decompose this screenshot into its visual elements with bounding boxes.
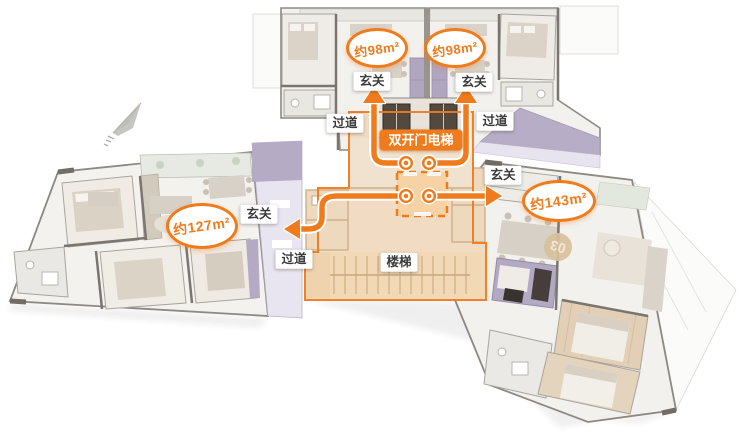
corridor-label-west: 过道 xyxy=(275,250,312,269)
area-badge-127-text: 约127m² xyxy=(172,212,232,240)
area-badge-98-right-text: 约98m² xyxy=(431,35,479,60)
area-badge-143-text: 约143m² xyxy=(529,187,589,215)
stairs-label: 楼梯 xyxy=(380,253,417,272)
area-badge-98-left-text: 约98m² xyxy=(353,35,401,60)
area-badge-98-right: 约98m² xyxy=(424,28,486,68)
area-badge-143: 约143m² xyxy=(522,180,596,222)
entry-label-north-right: 玄关 xyxy=(455,73,492,92)
compass-north-icon xyxy=(104,103,141,146)
elevator-label: 双开门电梯 xyxy=(379,130,462,151)
corridor-label-north-left: 过道 xyxy=(326,114,363,133)
area-badge-98-left: 约98m² xyxy=(346,28,408,68)
unit-127-plan xyxy=(10,141,302,318)
area-badge-127: 约127m² xyxy=(166,203,238,249)
entry-label-north-left: 玄关 xyxy=(353,72,390,91)
corridor-label-north-right: 过道 xyxy=(476,112,513,131)
floorplan-canvas: 玄关 玄关 玄关 玄关 过道 过道 过道 楼梯 双开门电梯 约98m² 约98m… xyxy=(0,0,740,437)
entry-label-east: 玄关 xyxy=(484,166,521,185)
entry-label-west: 玄关 xyxy=(240,205,277,224)
